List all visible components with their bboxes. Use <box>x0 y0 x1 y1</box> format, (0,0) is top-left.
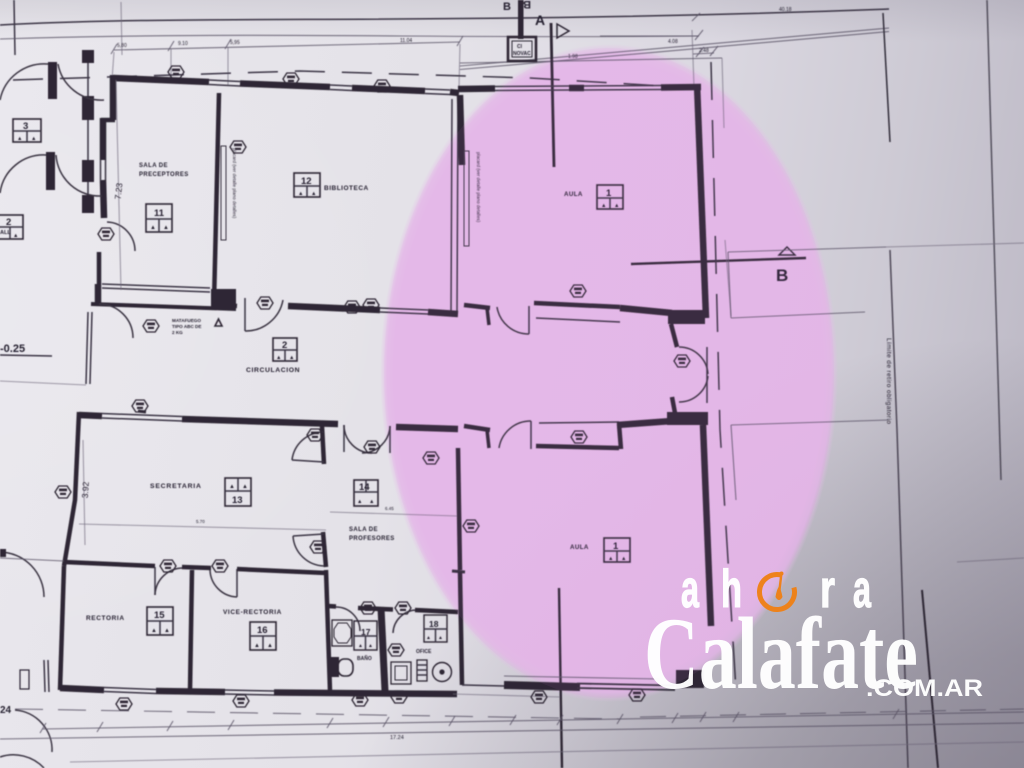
svg-text:40.18: 40.18 <box>779 7 792 13</box>
svg-text:B: B <box>503 1 511 13</box>
svg-text:ALL: ALL <box>0 230 11 236</box>
svg-text:▲: ▲ <box>369 499 374 505</box>
svg-text:▲: ▲ <box>289 355 294 361</box>
svg-text:15: 15 <box>154 610 165 621</box>
svg-text:2.48: 2.48 <box>699 48 709 54</box>
svg-text:17: 17 <box>361 627 371 637</box>
svg-text:▲: ▲ <box>298 191 303 197</box>
svg-text:▲: ▲ <box>254 643 260 649</box>
svg-text:13: 13 <box>232 495 243 506</box>
svg-text:BAÑO: BAÑO <box>357 655 372 662</box>
svg-text:▲: ▲ <box>276 355 281 361</box>
svg-text:2 KG: 2 KG <box>172 330 183 335</box>
svg-text:▲: ▲ <box>17 136 22 142</box>
svg-text:▲: ▲ <box>31 136 36 142</box>
svg-text:5.70: 5.70 <box>196 519 205 524</box>
svg-text:VICE-RECTORIA: VICE-RECTORIA <box>223 609 282 616</box>
svg-text:RECTORIA: RECTORIA <box>86 615 125 622</box>
svg-text:.COM.AR: .COM.AR <box>866 675 983 702</box>
svg-text:OFICE: OFICE <box>416 649 432 655</box>
svg-text:9.10: 9.10 <box>178 41 188 47</box>
svg-text:5,80: 5,80 <box>117 43 127 49</box>
svg-text:11.04: 11.04 <box>400 38 412 44</box>
svg-text:▲: ▲ <box>163 225 169 231</box>
svg-text:NOVAC: NOVAC <box>513 51 531 57</box>
svg-text:▲: ▲ <box>311 191 316 197</box>
svg-text:B: B <box>523 0 531 10</box>
svg-text:▲: ▲ <box>164 628 170 634</box>
svg-text:3.92: 3.92 <box>80 481 91 498</box>
svg-text:▲: ▲ <box>242 484 248 490</box>
svg-text:▲: ▲ <box>151 628 157 634</box>
svg-text:SALA DE: SALA DE <box>139 163 168 169</box>
svg-text:18: 18 <box>429 619 439 629</box>
svg-text:PRECEPTORES: PRECEPTORES <box>139 172 189 178</box>
svg-text:2: 2 <box>6 217 11 228</box>
svg-text:TIPO ABC DE: TIPO ABC DE <box>172 324 201 329</box>
svg-text:▲: ▲ <box>150 225 156 231</box>
svg-text:11: 11 <box>154 208 165 219</box>
svg-text:▲: ▲ <box>368 643 373 649</box>
svg-text:24: 24 <box>0 705 12 716</box>
svg-text:4.08: 4.08 <box>668 39 678 45</box>
svg-text:-0.25: -0.25 <box>0 343 25 355</box>
svg-text:MATAFUEGO: MATAFUEGO <box>172 318 201 323</box>
svg-text:7.23: 7.23 <box>113 182 125 200</box>
svg-text:▲: ▲ <box>438 635 443 641</box>
svg-text:PROFESORES: PROFESORES <box>349 536 395 542</box>
svg-text:▲: ▲ <box>357 499 362 505</box>
svg-text:▲: ▲ <box>426 635 431 641</box>
svg-text:3: 3 <box>23 121 28 132</box>
svg-text:SALA DE: SALA DE <box>349 527 378 533</box>
svg-text:2: 2 <box>282 340 287 351</box>
svg-text:12: 12 <box>301 176 312 187</box>
svg-text:Límite de retiro obligatorio: Límite de retiro obligatorio <box>885 338 892 424</box>
svg-text:CIRCULACION: CIRCULACION <box>246 367 300 374</box>
svg-text:▲: ▲ <box>267 643 273 649</box>
svg-text:BIBLIOTECA: BIBLIOTECA <box>324 185 369 192</box>
svg-text:SECRETARIA: SECRETARIA <box>150 483 202 490</box>
svg-text:5,95: 5,95 <box>230 40 240 46</box>
svg-text:▲: ▲ <box>229 484 235 490</box>
svg-text:▲: ▲ <box>358 643 363 649</box>
svg-text:16: 16 <box>257 625 268 636</box>
svg-text:placard (ver detalle plano det: placard (ver detalle plano detalles) <box>232 148 237 219</box>
svg-text:14: 14 <box>359 482 370 493</box>
svg-text:6.45: 6.45 <box>385 506 394 511</box>
svg-text:A: A <box>535 12 545 28</box>
svg-text:17.24: 17.24 <box>390 735 404 741</box>
svg-text:▲: ▲ <box>13 233 18 239</box>
svg-text:Cl: Cl <box>517 44 523 50</box>
